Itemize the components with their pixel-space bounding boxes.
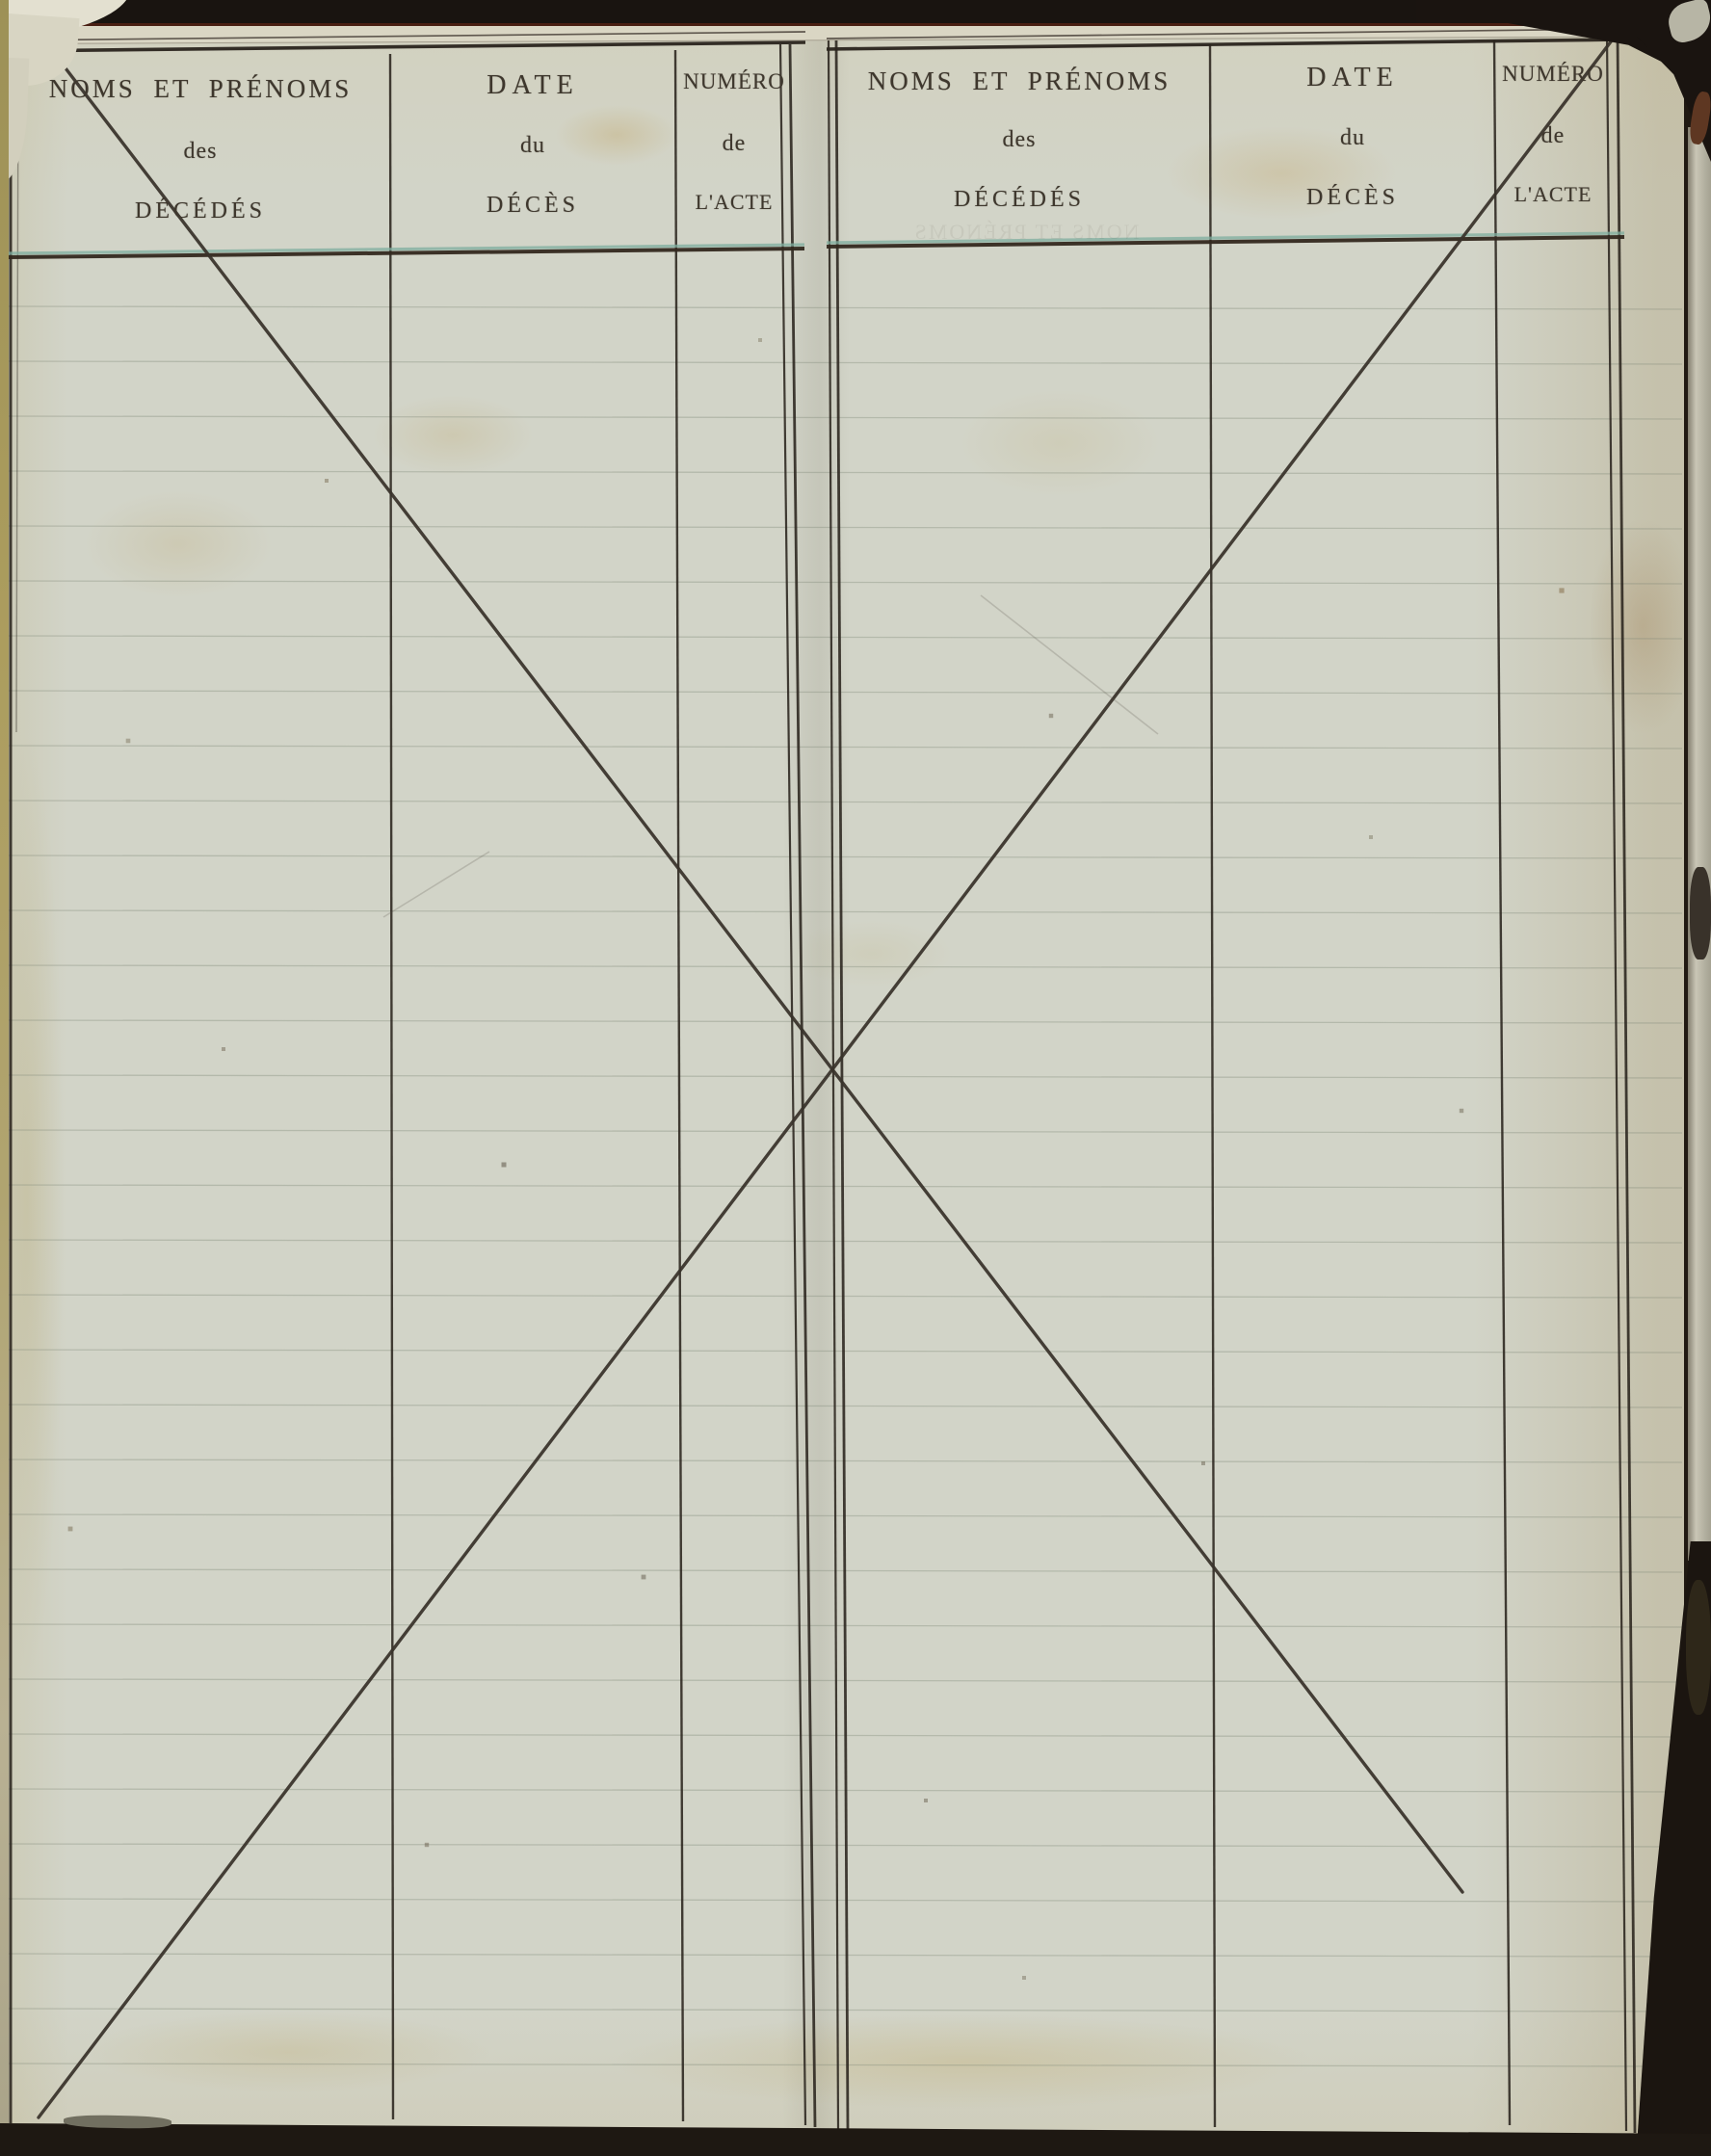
left-header-numero-line1: NUMÉRO: [677, 69, 791, 93]
table-ruling-and-ink-marks: [0, 0, 1711, 2156]
feint-ruling-line: [4, 1844, 1682, 1847]
feint-ruling-line: [4, 416, 1682, 419]
feint-ruling-line: [4, 581, 1682, 584]
feint-ruling-line: [4, 1734, 1682, 1737]
feint-ruling-line: [4, 636, 1682, 639]
feint-ruling-line: [4, 691, 1682, 694]
feint-ruling-line: [4, 855, 1682, 858]
left-header-numero-line3: L'ACTE: [677, 191, 791, 214]
left-header-noms-line2: des: [11, 139, 390, 164]
binding-ink-blob-2: [1690, 867, 1711, 960]
right-header-numero-line1: NUMÉRO: [1496, 62, 1610, 86]
feint-ruling-line: [4, 1569, 1682, 1572]
left-page-edge-strip: [0, 0, 9, 2156]
next-page-edge-light: [1688, 127, 1711, 1561]
show-through-ghost-text: NOMS ET PRÉNOMS: [867, 220, 1185, 245]
feint-ruling-line: [4, 471, 1682, 474]
left-header-date-line1: DATE: [390, 71, 675, 101]
right-table-right-border-outer: [1618, 35, 1635, 2133]
feint-ruling-line: [4, 1899, 1682, 1902]
feint-ruling-line: [4, 1624, 1682, 1627]
right-header-noms-line2: des: [830, 127, 1208, 152]
right-header-date-line3: DÉCÈS: [1211, 185, 1494, 210]
right-table-top-border-thin: [827, 29, 1622, 39]
feint-ruling-line: [4, 2009, 1682, 2011]
left-table-divider-date-numero: [675, 50, 683, 2121]
right-header-date-line1: DATE: [1211, 64, 1494, 93]
feint-ruling-line: [4, 306, 1682, 309]
right-header-noms-line1: NOMS ET PRÉNOMS: [830, 67, 1208, 96]
left-header-noms-line3: DÉCÉDÉS: [11, 198, 390, 223]
register-page-scan: NOMS ET PRÉNOMS des DÉCÉDÉS DATE du DÉCÈ…: [0, 0, 1711, 2156]
right-header-noms-line3: DÉCÉDÉS: [830, 187, 1208, 212]
right-table-divider-noms-date: [1210, 44, 1215, 2127]
feint-ruling-line: [4, 526, 1682, 529]
faint-scratch-2: [981, 595, 1158, 734]
feint-ruling-line: [4, 746, 1682, 749]
binding-ink-blob-1: [1686, 1580, 1711, 1715]
right-header-date-line2: du: [1211, 125, 1494, 150]
feint-ruling-line: [4, 1789, 1682, 1792]
feint-ruling-line: [4, 361, 1682, 364]
right-table-top-border-thick: [827, 39, 1622, 49]
cancellation-stroke-1: [25, 15, 1462, 1892]
feint-ruling-line: [4, 801, 1682, 803]
feint-ruling-line: [4, 1954, 1682, 1957]
left-header-numero-line2: de: [677, 131, 791, 156]
feint-ruling-line: [4, 1679, 1682, 1682]
left-table-top-border-thick: [8, 42, 805, 51]
left-header-noms-line1: NOMS ET PRÉNOMS: [11, 75, 390, 104]
faint-scratch-1: [383, 852, 489, 917]
right-table-divider-date-numero: [1494, 40, 1510, 2125]
right-header-numero-line3: L'ACTE: [1496, 183, 1610, 206]
feint-ruling-line: [4, 2064, 1682, 2066]
left-header-date-line3: DÉCÈS: [390, 193, 675, 218]
feint-ruling-line: [4, 965, 1682, 968]
right-header-numero-line2: de: [1496, 123, 1610, 148]
left-table-top-border-thin: [8, 32, 805, 40]
feint-ruling-line: [4, 1514, 1682, 1517]
right-table-right-border-inner: [1607, 35, 1626, 2131]
left-header-date-line2: du: [390, 133, 675, 158]
left-table-divider-noms-date: [390, 54, 393, 2119]
foxing-speckles: [0, 0, 2, 2]
feint-ruling-line: [4, 910, 1682, 913]
